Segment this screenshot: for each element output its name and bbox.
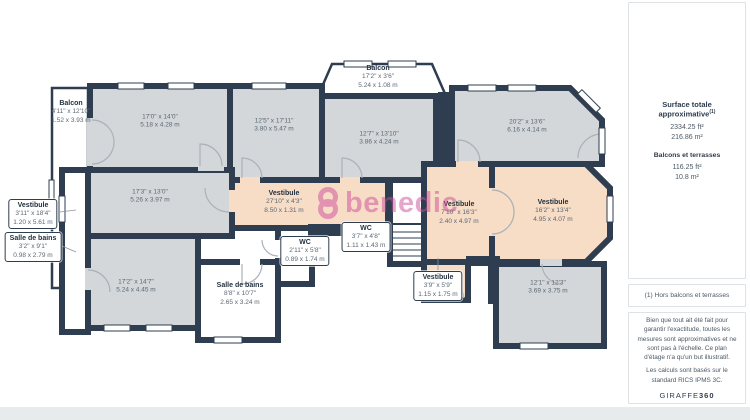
balconies-title: Balcons et terrasses [635,152,739,159]
balconies-m: 10.8 m² [635,174,739,181]
standard-text: Les calculs sont basés sur le standard R… [636,366,738,385]
label-room-top-right: 20'2" x 13'6" 6.16 x 4.14 m [507,119,546,136]
floor-plan-page: benedic Balcon 4'11" x 12'10" 1.52 x 3.9… [0,0,750,420]
balconies-ft: 116.25 ft² [635,164,739,171]
label-wc-right: WC 3'7" x 4'8" 1.11 x 1.43 m [342,222,391,252]
footnote-card: (1) Hors balcons et terrasses [628,284,746,308]
room-bottom-right [496,264,604,346]
disclaimer-card: Bien que tout ait été fait pour garantir… [628,312,746,404]
label-vestibule-central: Vestibule 27'10" x 4'3" 8.50 x 1.31 m [264,189,303,215]
label-salle-de-bains-left: Salle de bains 3'2" x 9'1" 0.98 x 2.79 m [5,232,62,262]
footnote-marker: (1) [709,109,715,115]
surface-summary-card: Surface totale approximative(1) 2334.25 … [628,2,746,279]
bottom-margin [0,407,750,420]
total-surface-m: 216.86 m² [635,134,739,141]
total-surface-title: Surface totale approximative(1) [635,100,739,119]
central-corridor [232,180,388,228]
label-room-top-left: 17'0" x 14'0" 5.18 x 4.28 m [140,114,179,131]
label-room-top-3: 12'7" x 13'10" 3.86 x 4.24 m [359,131,398,148]
label-vestibule-left: Vestibule 3'11" x 18'4" 1.20 x 5.61 m [8,199,57,229]
label-vestibule-bottom: Vestibule 3'9" x 5'9" 1.15 x 1.75 m [413,271,462,301]
summary-sidebar: Surface totale approximative(1) 2334.25 … [628,2,746,404]
label-wc-left: WC 2'11" x 5'8" 0.89 x 1.74 m [280,236,329,266]
label-room-mid-left: 17'3" x 13'0" 5.26 x 3.97 m [130,189,169,206]
label-vestibule-mid: Vestibule 7'10" x 16'3" 2.40 x 4.97 m [439,200,478,226]
wc-stairs-block [390,180,424,264]
label-room-top-2: 12'5" x 17'11" 3.80 x 5.47 m [254,118,293,135]
left-vestibule-strip [62,170,88,332]
label-balcon-left: Balcon 4'11" x 12'10" 1.52 x 3.93 m [51,99,90,125]
giraffe360-logo: GIRAFFE360 [636,391,738,400]
label-vestibule-right: Vestibule 16'2" x 13'4" 4.95 x 4.07 m [533,198,572,224]
label-room-bottom-left: 17'2" x 14'7" 5.24 x 4.45 m [116,279,155,296]
label-room-bottom-right: 12'1" x 12'3" 3.69 x 3.75 m [528,280,567,297]
label-salle-de-bains-bottom: Salle de bains 8'8" x 10'7" 2.65 x 3.24 … [217,281,264,307]
total-surface-ft: 2334.25 ft² [635,124,739,131]
disclaimer-text: Bien que tout ait été fait pour garantir… [636,316,738,362]
label-balcon-top: Balcon 17'2" x 3'6" 5.24 x 1.08 m [358,64,397,90]
